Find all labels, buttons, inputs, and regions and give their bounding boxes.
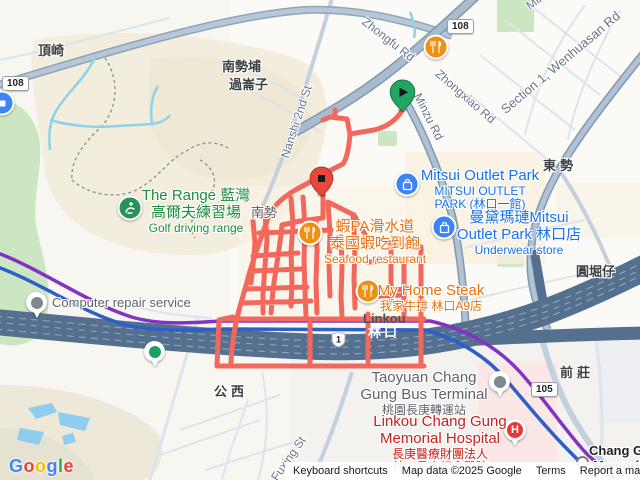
google-logo-letter: e	[64, 456, 75, 476]
poi-label-bus-terminal[interactable]: Taoyuan Chang Gung Bus Terminal 桃園長庚轉運站	[360, 370, 487, 417]
highway-1-shield: 1	[331, 331, 346, 348]
google-logo-letter: o	[35, 456, 47, 476]
google-logo-letter: o	[24, 456, 36, 476]
golf-icon[interactable]	[118, 196, 143, 221]
area-label-nanshipu: 南勢埔	[222, 60, 261, 75]
route-badge-108-left: 108	[2, 76, 29, 91]
google-logo[interactable]: Google	[9, 456, 74, 477]
label-linkou-highway: 林口	[368, 326, 400, 341]
poi-label-mitsui-outlet[interactable]: Mitsui Outlet Park MITSUI OUTLET PARK (林…	[421, 168, 539, 212]
route-start-marker[interactable]	[389, 79, 416, 113]
map-data-text: Map data ©2025 Google	[402, 465, 522, 477]
restaurant-icon-top[interactable]	[424, 35, 449, 60]
route-end-marker[interactable]	[309, 166, 334, 198]
keyboard-shortcuts-link[interactable]: Keyboard shortcuts	[293, 465, 388, 477]
svg-text:1: 1	[336, 335, 341, 345]
route-badge-105: 105	[531, 382, 558, 397]
attribution-bar: Keyboard shortcuts Map data ©2025 Google…	[285, 462, 640, 480]
area-label-gongxi: 公西	[214, 385, 248, 400]
terms-link[interactable]: Terms	[536, 465, 566, 477]
restaurant-icon-shrimp[interactable]	[298, 221, 323, 246]
poi-label-golf-range[interactable]: The Range 藍灣 高爾夫練習場 Golf driving range	[142, 188, 250, 235]
google-logo-letter: G	[9, 456, 24, 476]
area-label-qianzhuang: 前莊	[560, 366, 594, 381]
google-logo-letter: g	[47, 456, 59, 476]
area-label-dongshi: 東勢	[543, 159, 577, 174]
map-canvas[interactable]: 108 108 105 1 Zhongfu Rd Zhongxiao Rd Mi…	[0, 0, 640, 480]
shopping-icon-mitsui[interactable]	[395, 172, 420, 197]
area-label-yuankuzi: 圓堀仔	[576, 265, 615, 280]
poi-label-mandai-mitsui[interactable]: 曼黛瑪璉Mitsui Outlet Park 林口店 Underwear sto…	[457, 210, 581, 257]
bus-terminal-pin[interactable]	[489, 371, 510, 397]
computer-repair-pin[interactable]	[26, 292, 47, 318]
poi-label-computer-repair[interactable]: Computer repair service	[52, 296, 191, 311]
transit-stop-pin[interactable]	[144, 341, 165, 367]
poi-label-shrimp-restaurant[interactable]: 蝦PA滑水道 泰國蝦吃到飽 Seafood restaurant	[324, 219, 426, 266]
hospital-icon[interactable]: H	[504, 419, 526, 446]
shopping-icon-mandai[interactable]	[432, 215, 457, 240]
report-map-error-link[interactable]: Report a map error	[580, 465, 640, 477]
area-label-guolunzi: 過崙子	[229, 78, 268, 93]
area-label-dingqi: 頂崎	[38, 44, 64, 59]
poi-label-my-home-steak[interactable]: My Home Steak 我家牛排 林口A9店	[378, 283, 485, 313]
route-badge-108-top: 108	[447, 19, 474, 34]
street-label-nanshi: 南勢	[251, 206, 277, 221]
